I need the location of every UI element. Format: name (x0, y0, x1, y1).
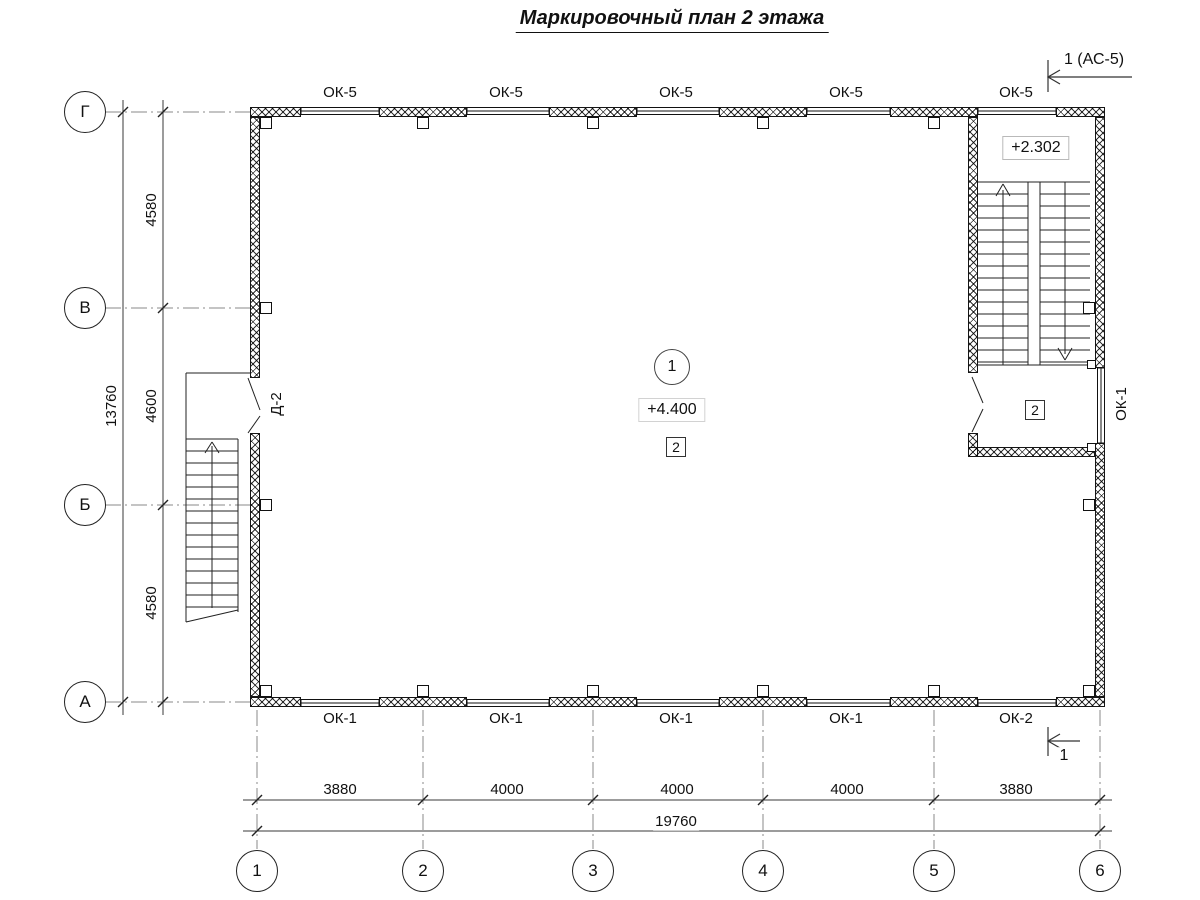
pilaster (1083, 499, 1095, 511)
section-mark-top-label: 1 (АС-5) (1062, 51, 1126, 69)
hall-finish-tag: 2 (666, 437, 686, 457)
dimension-ticks (118, 107, 1105, 836)
axis-circle-left: Б (64, 484, 106, 526)
door-label: Д-2 (269, 390, 286, 418)
axis-circle-bottom: 2 (402, 850, 444, 892)
axis-label: 2 (418, 861, 427, 881)
axis-circle-bottom: 6 (1079, 850, 1121, 892)
dim-left-total: 13760 (104, 383, 121, 429)
dim-left-segment: 4580 (144, 584, 161, 621)
window-label-top: ОК-5 (487, 85, 525, 102)
dimension-lines (123, 100, 1112, 831)
hall-elevation-label: +4.400 (638, 398, 705, 422)
axis-circle-bottom: 4 (742, 850, 784, 892)
dim-bottom-total: 19760 (653, 814, 699, 831)
pilaster (260, 302, 272, 314)
axis-label: 5 (929, 861, 938, 881)
pilaster (260, 685, 272, 697)
window-label-bottom: ОК-1 (321, 711, 359, 728)
window-jamb (1087, 360, 1096, 369)
dim-bottom-segment: 4000 (828, 782, 865, 799)
window-label-bottom: ОК-1 (487, 711, 525, 728)
pilaster (757, 685, 769, 697)
pilaster (417, 117, 429, 129)
pilaster (587, 685, 599, 697)
floor-plan-drawing: Маркировочный план 2 этажа (0, 0, 1200, 900)
stair-right (978, 182, 1095, 365)
axis-lines (105, 112, 1100, 849)
window-label-bottom: ОК-1 (827, 711, 865, 728)
window-label-bottom: ОК-2 (997, 711, 1035, 728)
section-mark-bottom-label: 1 (1058, 747, 1071, 765)
axis-label: 6 (1095, 861, 1104, 881)
pilaster (417, 685, 429, 697)
pilaster (587, 117, 599, 129)
plan-linework (0, 0, 1200, 900)
finish-tag-number: 2 (1031, 402, 1039, 418)
door-symbols (248, 377, 983, 433)
pilaster (1083, 302, 1095, 314)
window-label-top: ОК-5 (997, 85, 1035, 102)
dim-left-segment: 4600 (144, 387, 161, 424)
pilaster (757, 117, 769, 129)
pilaster (260, 499, 272, 511)
window-label-top: ОК-5 (657, 85, 695, 102)
pilaster (928, 117, 940, 129)
room-number: 1 (668, 358, 677, 376)
room-number-circle: 1 (654, 349, 690, 385)
axis-circle-bottom: 3 (572, 850, 614, 892)
dim-bottom-segment: 3880 (321, 782, 358, 799)
axis-label: А (79, 692, 90, 712)
axis-label: 4 (758, 861, 767, 881)
pilaster (928, 685, 940, 697)
dim-left-segment: 4580 (144, 191, 161, 228)
dim-bottom-segment: 4000 (488, 782, 525, 799)
axis-circle-bottom: 5 (913, 850, 955, 892)
stair-left (186, 373, 250, 622)
finish-tag-number: 2 (672, 439, 680, 455)
window-label-bottom: ОК-1 (657, 711, 695, 728)
window-label-right: ОК-1 (1114, 385, 1131, 423)
axis-circle-bottom: 1 (236, 850, 278, 892)
stairwell-elevation-label: +2.302 (1002, 136, 1069, 160)
pilaster (260, 117, 272, 129)
stairwell-finish-tag: 2 (1025, 400, 1045, 420)
axis-circle-left: Г (64, 91, 106, 133)
axis-label: 3 (588, 861, 597, 881)
axis-label: 1 (252, 861, 261, 881)
dim-bottom-segment: 3880 (997, 782, 1034, 799)
window-label-top: ОК-5 (827, 85, 865, 102)
axis-label: Г (80, 102, 89, 122)
axis-circle-left: В (64, 287, 106, 329)
dim-bottom-segment: 4000 (658, 782, 695, 799)
window-jamb (1087, 443, 1096, 452)
pilaster (1083, 685, 1095, 697)
axis-label: Б (79, 495, 90, 515)
axis-label: В (79, 298, 90, 318)
window-label-top: ОК-5 (321, 85, 359, 102)
axis-circle-left: А (64, 681, 106, 723)
